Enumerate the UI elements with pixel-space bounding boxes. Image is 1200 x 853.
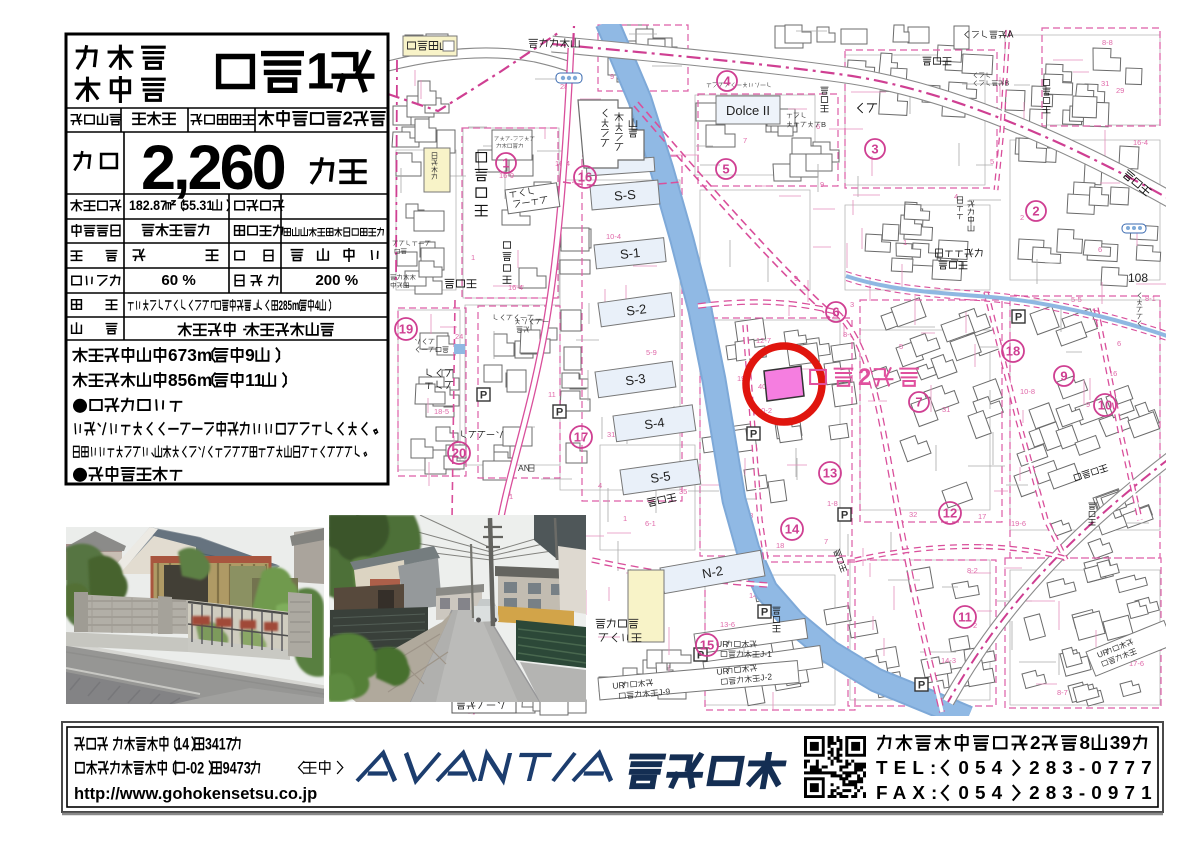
svg-text:5-5: 5-5 (1071, 295, 1082, 304)
svg-text:1: 1 (306, 42, 334, 99)
svg-text:14-3: 14-3 (941, 656, 956, 665)
svg-text:60 %: 60 % (161, 272, 196, 289)
svg-text:283-0777: 283-0777 (1029, 758, 1158, 779)
svg-text:10: 10 (1098, 398, 1112, 413)
svg-text:S-3: S-3 (624, 371, 646, 389)
svg-text:18: 18 (1006, 344, 1020, 359)
svg-text:J-1: J-1 (760, 649, 772, 659)
svg-text:B: B (1005, 81, 1010, 88)
svg-text:16-4: 16-4 (1133, 138, 1148, 147)
svg-text:9473: 9473 (223, 760, 251, 778)
svg-text:20: 20 (452, 446, 466, 461)
svg-text:S-1: S-1 (619, 245, 641, 262)
svg-text:17: 17 (574, 430, 588, 445)
svg-text:UR: UR (716, 666, 729, 677)
svg-text:1: 1 (471, 253, 475, 262)
svg-text:29: 29 (1116, 86, 1124, 95)
svg-text:673m: 673m (168, 345, 212, 365)
svg-text:12-7: 12-7 (756, 336, 771, 345)
svg-text:35: 35 (679, 487, 687, 496)
svg-text:6: 6 (1098, 245, 1102, 254)
svg-text:P: P (480, 390, 487, 402)
svg-text:15: 15 (700, 638, 714, 653)
svg-text:856m: 856m (168, 370, 212, 390)
svg-text:9: 9 (1060, 369, 1067, 384)
svg-text:9: 9 (820, 180, 824, 189)
svg-text:7: 7 (743, 136, 747, 145)
svg-text:B: B (821, 120, 826, 129)
svg-text:FAX:: FAX: (876, 783, 943, 804)
svg-text:5: 5 (899, 342, 903, 351)
svg-text:TEL:: TEL: (876, 758, 942, 779)
svg-text:24: 24 (455, 332, 463, 341)
svg-text:S-2: S-2 (625, 301, 647, 319)
svg-text:200 %: 200 % (315, 272, 358, 289)
svg-text:32: 32 (909, 510, 917, 519)
svg-text:14: 14 (175, 736, 189, 754)
svg-text:UR: UR (612, 680, 625, 691)
svg-text:31: 31 (607, 430, 615, 439)
svg-text:39: 39 (1110, 733, 1131, 754)
svg-text:31: 31 (1101, 79, 1109, 88)
svg-text:16-4: 16-4 (508, 283, 523, 292)
svg-text:S-5: S-5 (649, 468, 671, 486)
svg-text:13: 13 (823, 466, 837, 481)
svg-text:2: 2 (343, 108, 353, 129)
svg-text:J-9: J-9 (658, 686, 671, 697)
svg-text:8: 8 (1080, 733, 1091, 754)
svg-text:6-1: 6-1 (645, 519, 656, 528)
svg-text:283-0971: 283-0971 (1029, 783, 1158, 804)
svg-text:10-8: 10-8 (1020, 387, 1035, 396)
svg-text:7: 7 (824, 537, 828, 546)
svg-text:9: 9 (245, 345, 255, 365)
svg-text:12: 12 (943, 506, 957, 521)
svg-text:4: 4 (598, 481, 602, 490)
svg-text:Dolce II: Dolce II (726, 103, 770, 118)
svg-text:182.87: 182.87 (129, 197, 167, 213)
svg-text:8-1: 8-1 (1145, 294, 1156, 303)
svg-text:31: 31 (942, 405, 950, 414)
svg-text:9: 9 (1086, 400, 1090, 409)
svg-text:6: 6 (1117, 339, 1121, 348)
svg-text:P: P (750, 429, 757, 441)
svg-text:8-8: 8-8 (1102, 38, 1113, 47)
svg-text:1: 1 (903, 238, 907, 247)
svg-text:P: P (841, 510, 848, 522)
svg-text:054: 054 (958, 758, 1008, 779)
svg-text:1: 1 (623, 514, 627, 523)
svg-text:2,260: 2,260 (141, 133, 285, 203)
svg-text:1: 1 (502, 156, 509, 171)
svg-text:A: A (1007, 30, 1014, 41)
svg-text:55.31: 55.31 (182, 197, 213, 213)
svg-text:108: 108 (1128, 271, 1148, 285)
svg-text:3: 3 (850, 300, 854, 309)
svg-text:10-4: 10-4 (606, 232, 621, 241)
svg-text:11: 11 (548, 390, 556, 399)
svg-text:054: 054 (958, 783, 1008, 804)
svg-text:P: P (1015, 312, 1022, 324)
svg-text:2: 2 (858, 364, 873, 391)
svg-text:17: 17 (978, 512, 986, 521)
svg-text:14: 14 (785, 522, 800, 537)
svg-text:P: P (761, 607, 768, 619)
svg-text:5: 5 (990, 157, 994, 166)
svg-text:11: 11 (958, 610, 972, 625)
svg-text:AN: AN (518, 463, 530, 473)
svg-text:3: 3 (871, 142, 878, 157)
svg-text:285m: 285m (279, 299, 300, 314)
svg-text:6: 6 (832, 305, 839, 320)
svg-text:19-6: 19-6 (1011, 519, 1026, 528)
svg-text:P: P (918, 680, 925, 692)
svg-text:3417: 3417 (205, 736, 232, 754)
svg-text:8-7: 8-7 (1057, 688, 1068, 697)
svg-text:16: 16 (578, 170, 592, 185)
svg-text:5-9: 5-9 (646, 348, 657, 357)
svg-text:1-8: 1-8 (827, 499, 838, 508)
svg-text:4: 4 (315, 299, 320, 314)
svg-text:2: 2 (1020, 213, 1024, 222)
svg-text:18-5: 18-5 (434, 407, 449, 416)
svg-text:11: 11 (245, 370, 264, 390)
svg-text:13-6: 13-6 (720, 620, 735, 629)
svg-text:J-2: J-2 (760, 671, 773, 682)
svg-text:S-S: S-S (613, 187, 636, 204)
svg-text:18: 18 (776, 541, 784, 550)
svg-text:2: 2 (1032, 204, 1039, 219)
svg-text:2: 2 (1030, 733, 1041, 754)
svg-text:9: 9 (610, 72, 614, 81)
svg-text:4: 4 (723, 74, 731, 89)
svg-text:P: P (556, 407, 563, 419)
svg-text:19: 19 (399, 322, 413, 337)
svg-text:-02: -02 (186, 760, 204, 778)
svg-text:S-4: S-4 (643, 415, 665, 433)
svg-text:5: 5 (722, 162, 729, 177)
svg-text:http://www.gohokensetsu.co.jp: http://www.gohokensetsu.co.jp (74, 785, 317, 803)
svg-text:-: - (511, 137, 513, 143)
svg-text:8-2: 8-2 (967, 566, 978, 575)
svg-text:7: 7 (915, 395, 922, 410)
